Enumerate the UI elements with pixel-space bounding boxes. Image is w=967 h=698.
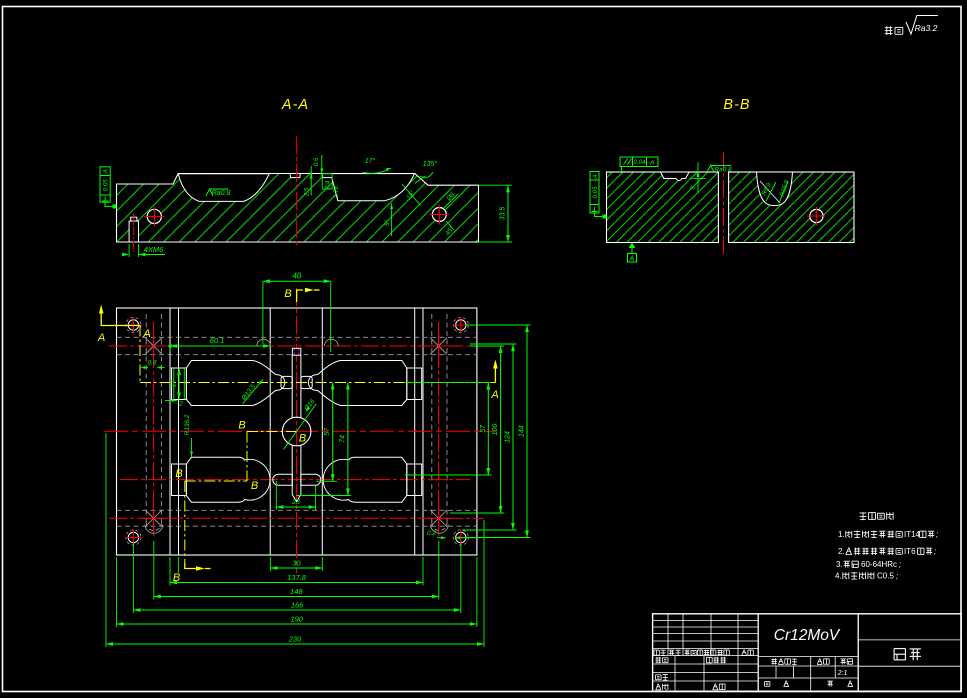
svg-text:60.1: 60.1 (210, 336, 225, 345)
svg-text:B: B (238, 420, 245, 432)
svg-text:A: A (142, 328, 150, 340)
svg-text:3.: 3. (836, 560, 843, 569)
svg-text:B: B (251, 480, 258, 492)
svg-text:100: 100 (492, 424, 499, 436)
svg-text:2:1: 2:1 (837, 670, 848, 677)
svg-text:230: 230 (288, 635, 302, 644)
svg-text:0.2: 0.2 (427, 530, 436, 537)
svg-text:A: A (649, 159, 654, 166)
svg-text:17: 17 (171, 380, 178, 388)
svg-text:4XM6: 4XM6 (144, 245, 164, 254)
svg-text:17°: 17° (365, 157, 376, 165)
svg-text:190: 190 (290, 615, 303, 624)
svg-text:B: B (284, 288, 291, 300)
svg-text:Cr12MoV: Cr12MoV (774, 627, 841, 644)
svg-text:124: 124 (505, 431, 512, 443)
svg-text:IT14: IT14 (904, 530, 921, 539)
svg-text:40: 40 (292, 272, 301, 281)
svg-text:23: 23 (291, 499, 300, 506)
svg-text:5°: 5° (385, 220, 391, 226)
svg-text:;: ; (896, 572, 898, 581)
svg-text:B: B (175, 468, 182, 480)
svg-text:135°: 135° (423, 160, 438, 168)
svg-text:C0.5: C0.5 (877, 572, 894, 581)
svg-text:0.05: 0.05 (592, 186, 599, 199)
svg-text:144: 144 (519, 425, 526, 437)
svg-text:60-64HRc: 60-64HRc (861, 560, 897, 569)
svg-text:B-B: B-B (723, 97, 750, 113)
svg-text:R136.2: R136.2 (184, 414, 191, 435)
svg-text:3: 3 (690, 186, 697, 190)
svg-text:A: A (490, 389, 498, 401)
svg-text:2: 2 (178, 401, 183, 408)
svg-text:0.8: 0.8 (147, 360, 156, 367)
svg-text:;: ; (936, 530, 938, 539)
svg-text:Ra0.8: Ra0.8 (714, 167, 732, 174)
svg-text:57: 57 (480, 424, 487, 433)
svg-text:74: 74 (339, 435, 346, 443)
svg-text:0.4: 0.4 (326, 180, 332, 189)
svg-text:4.: 4. (835, 572, 842, 581)
svg-text:1.: 1. (838, 530, 845, 539)
svg-text:B: B (299, 433, 306, 445)
svg-text:166: 166 (291, 601, 304, 610)
svg-text:33.5: 33.5 (500, 207, 507, 221)
svg-text:Ra3.2: Ra3.2 (915, 23, 938, 33)
svg-text:137.8: 137.8 (287, 573, 307, 582)
svg-text:2.: 2. (838, 547, 845, 556)
svg-text:A: A (97, 332, 105, 344)
svg-text:57: 57 (324, 427, 331, 436)
svg-text:148: 148 (290, 587, 303, 596)
svg-text:1.78: 1.78 (334, 186, 340, 198)
svg-text:2.5: 2.5 (305, 187, 311, 197)
svg-text:A: A (629, 256, 635, 263)
svg-text:IT6: IT6 (904, 547, 916, 556)
svg-text:0.05: 0.05 (103, 179, 110, 192)
svg-text:Ra0.8: Ra0.8 (212, 190, 231, 197)
svg-text:0.5: 0.5 (314, 157, 320, 166)
svg-text:A: A (103, 169, 110, 174)
svg-text:;: ; (934, 547, 936, 556)
svg-text:A-A: A-A (281, 97, 309, 113)
svg-text:30: 30 (292, 559, 301, 568)
svg-text:0.04: 0.04 (633, 159, 646, 166)
svg-text:;: ; (899, 560, 901, 569)
svg-text:A: A (592, 174, 599, 179)
